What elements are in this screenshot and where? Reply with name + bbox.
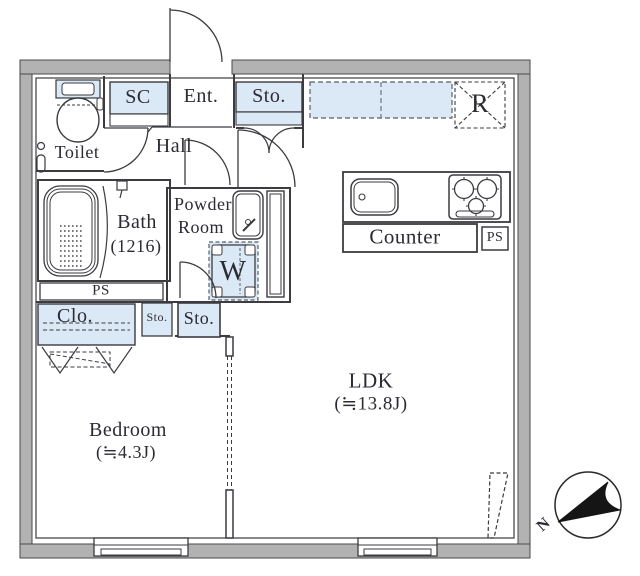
room-label-powder-2: Room xyxy=(178,218,224,236)
room-label-shoe-closet: SC xyxy=(125,87,150,107)
overhead-cabinet xyxy=(310,82,452,118)
room-label-toilet: Toilet xyxy=(55,143,100,161)
room-label-storage-small: Sto. xyxy=(146,311,167,323)
kitchen-stove xyxy=(449,175,501,219)
room-label-hall: Hall xyxy=(156,136,192,156)
wash-basin xyxy=(233,191,263,239)
toilet-fixture xyxy=(56,80,103,142)
room-label-bath-size: (1216) xyxy=(111,237,162,255)
room-label-storage-mid: Sto. xyxy=(184,309,215,327)
room-label-entrance: Ent. xyxy=(184,86,219,106)
room-label-bedroom-area: (≒4.3J) xyxy=(96,443,156,461)
room-label-entrance-storage: Sto. xyxy=(252,86,286,106)
room-label-refrigerator: R xyxy=(471,91,489,117)
room-label-bath: Bath xyxy=(117,212,157,232)
room-label-ps-kitchen: PS xyxy=(487,231,504,245)
room-label-bedroom: Bedroom xyxy=(89,420,167,440)
floor-plan: Toilet SC Ent. Sto. R Hall Bath (1216) P… xyxy=(0,0,640,576)
entrance-step xyxy=(148,127,232,132)
room-label-closet: Clo. xyxy=(57,306,93,326)
toilet-paper-holder-icon xyxy=(37,143,45,173)
room-label-ldk: LDK xyxy=(349,371,394,392)
toilet-door xyxy=(104,128,148,172)
room-label-ldk-area: (≒13.8J) xyxy=(334,395,407,414)
room-label-ps-bath: PS xyxy=(92,284,110,299)
entrance-door xyxy=(170,8,222,62)
compass-icon xyxy=(555,472,621,538)
powder-cabinet xyxy=(267,191,284,297)
sliding-partition xyxy=(226,337,233,538)
ldk-door xyxy=(238,130,295,187)
bedroom-window xyxy=(94,538,188,556)
ldk-window xyxy=(358,538,437,556)
room-label-powder-1: Powder xyxy=(174,195,232,213)
room-label-washer: W xyxy=(220,258,247,286)
ldk-dashed-area xyxy=(488,473,508,538)
kitchen-sink xyxy=(351,179,398,215)
room-label-counter: Counter xyxy=(369,227,440,248)
bathtub-drain-dots xyxy=(60,226,84,266)
closet-folding-doors xyxy=(42,347,132,373)
